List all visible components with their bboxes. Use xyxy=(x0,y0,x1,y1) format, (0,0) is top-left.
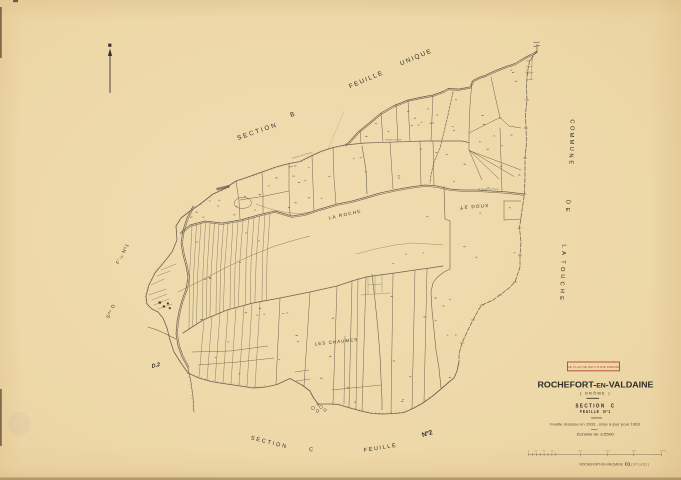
svg-text:M: M xyxy=(568,139,574,144)
svg-text:FEUILLE Nº1: FEUILLE Nº1 xyxy=(580,409,611,414)
svg-text:St Depart de Thone: St Depart de Thone xyxy=(478,188,499,191)
svg-text:C: C xyxy=(559,282,565,286)
svg-text:chemin rural dit: chemin rural dit xyxy=(385,139,402,142)
svg-text:Échelle de 1/2500: Échelle de 1/2500 xyxy=(577,431,614,436)
svg-text:A: A xyxy=(560,251,566,255)
svg-text:D: D xyxy=(565,200,571,204)
svg-text:T: T xyxy=(559,260,565,264)
svg-text:U: U xyxy=(559,274,565,278)
svg-text:CE PLAN NE PEUT ETRE PERIME: CE PLAN NE PEUT ETRE PERIME xyxy=(568,365,619,369)
svg-text:Feuille dressée en 1933 , mise: Feuille dressée en 1933 , mise à jour po… xyxy=(550,423,640,427)
svg-text:H: H xyxy=(558,289,564,293)
svg-text:O: O xyxy=(559,267,565,272)
svg-text:E: E xyxy=(558,296,564,300)
svg-text:( DRÔME ): ( DRÔME ) xyxy=(580,391,611,396)
svg-text:M: M xyxy=(568,133,574,138)
svg-text:400 m: 400 m xyxy=(660,451,666,453)
svg-text:E: E xyxy=(567,160,573,164)
svg-text:E: E xyxy=(564,208,570,212)
svg-text:U: U xyxy=(568,147,574,151)
svg-text:O: O xyxy=(568,126,574,131)
svg-text:ROCHEFORT-EN-VALDAINE C1 ( Nº: ROCHEFORT-EN-VALDAINE C1 ( Nº 1 à 51 ) xyxy=(579,462,649,467)
svg-text:C: C xyxy=(309,447,313,453)
svg-text:C: C xyxy=(569,119,575,123)
svg-text:N: N xyxy=(568,153,574,157)
svg-text:ROCHEFORT-EN-VALDAINE: ROCHEFORT-EN-VALDAINE xyxy=(538,380,655,389)
